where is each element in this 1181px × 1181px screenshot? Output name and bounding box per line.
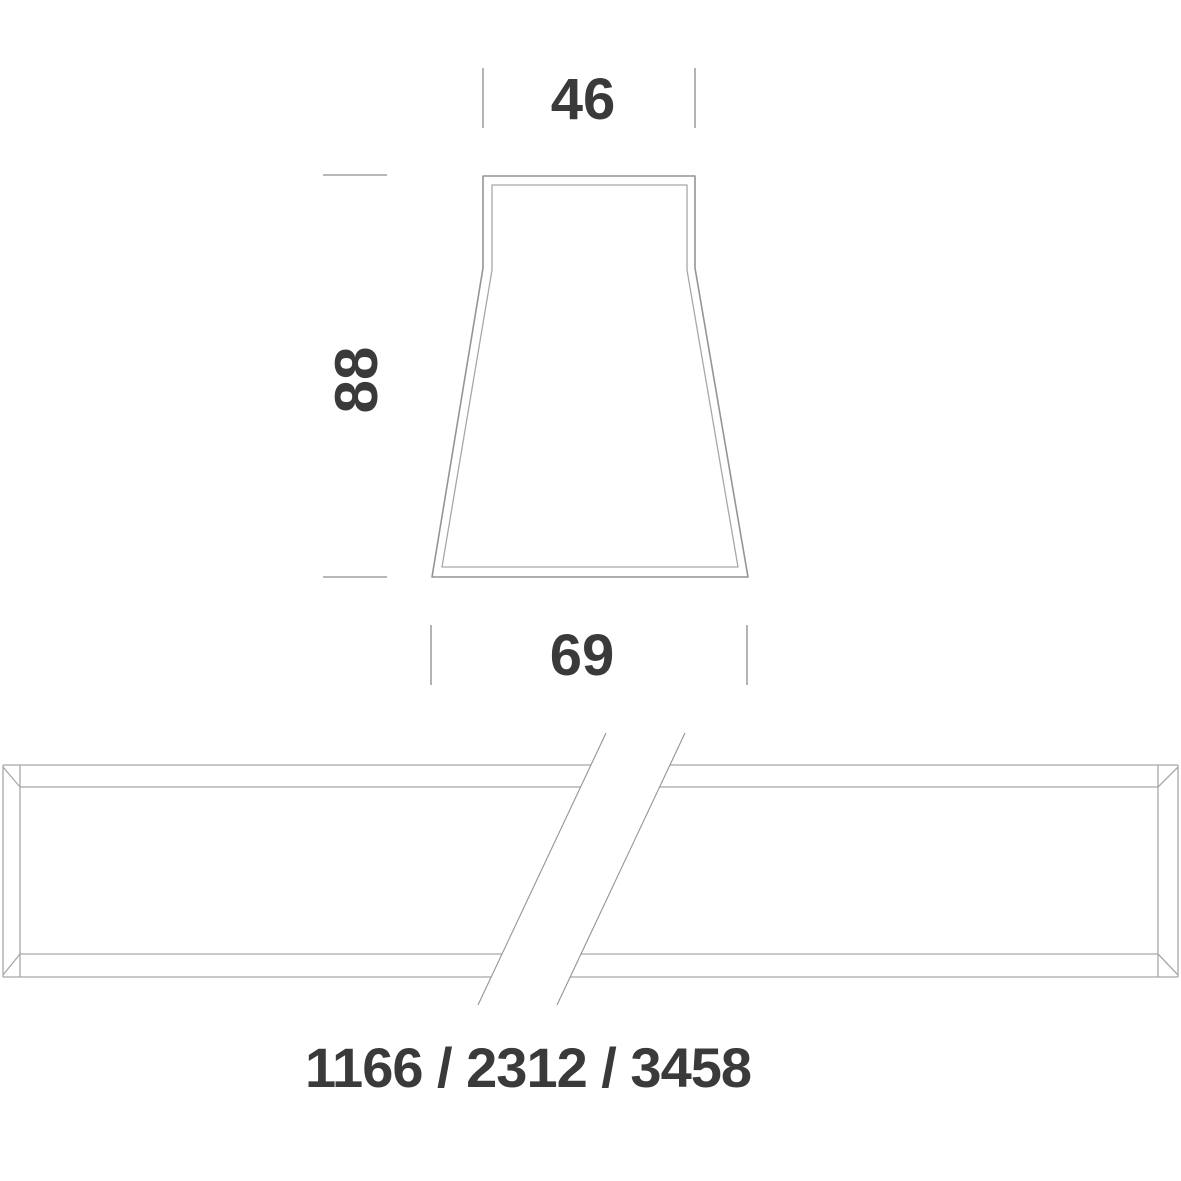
break-line-left: [478, 733, 606, 1005]
dim-label-top-width: 46: [551, 71, 616, 129]
dim-label-height: 88: [327, 347, 387, 414]
profile-outer-outline: [432, 176, 748, 577]
technical-dimension-drawing: 46 88 69 1166 / 2312 / 3458: [0, 0, 1181, 1181]
bar-corner-bevels: [3, 767, 1178, 975]
side-elevation-view: [3, 733, 1178, 1005]
dim-label-bottom-width: 69: [550, 627, 615, 685]
break-line-right: [557, 733, 685, 1005]
profile-inner-outline: [442, 185, 738, 567]
dim-label-length-variants: 1166 / 2312 / 3458: [305, 1040, 751, 1096]
drawing-linework: [0, 0, 1181, 1181]
